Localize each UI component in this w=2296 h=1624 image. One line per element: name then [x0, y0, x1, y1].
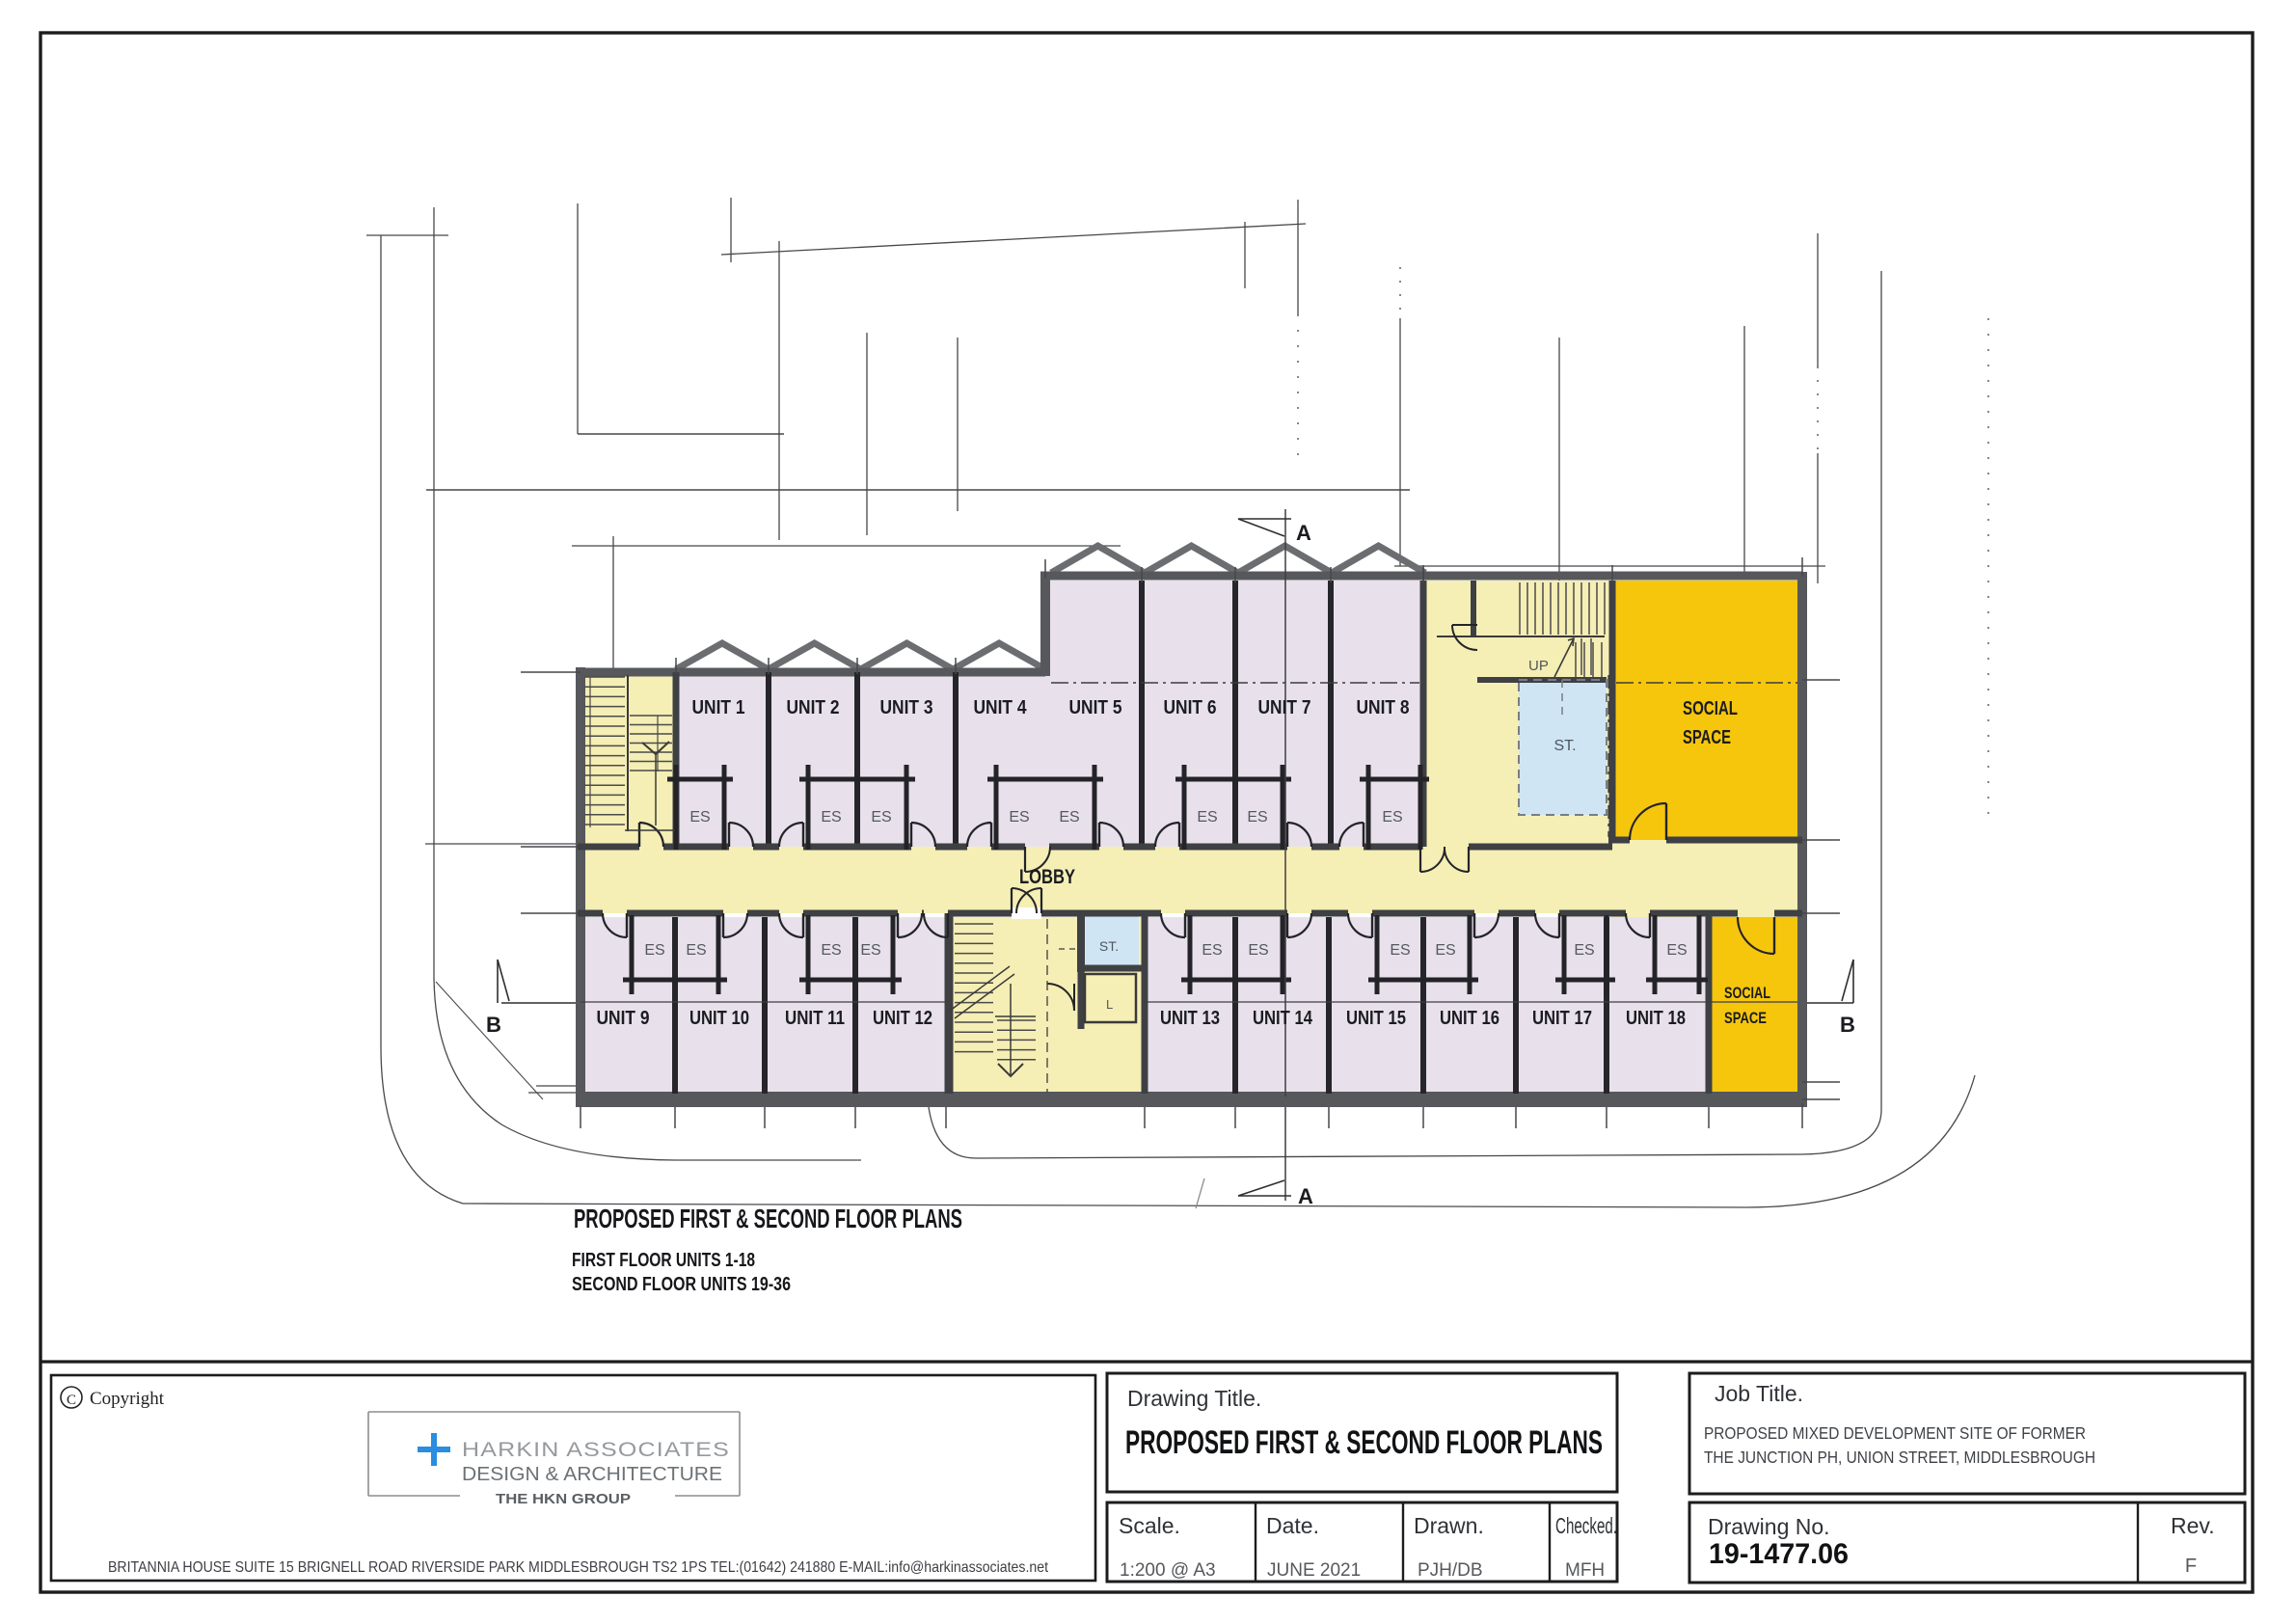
svg-text:DESIGN & ARCHITECTURE: DESIGN & ARCHITECTURE [462, 1464, 722, 1485]
svg-text:Date.: Date. [1266, 1513, 1319, 1538]
svg-text:ES: ES [1574, 942, 1594, 959]
svg-text:ES: ES [871, 809, 891, 826]
svg-text:ES: ES [1009, 809, 1029, 826]
svg-text:ES: ES [821, 942, 841, 959]
svg-text:ES: ES [1248, 942, 1268, 959]
svg-text:B: B [486, 1013, 501, 1037]
svg-text:HARKIN ASSOCIATES: HARKIN ASSOCIATES [462, 1439, 730, 1461]
svg-text:ES: ES [1247, 809, 1267, 826]
svg-text:ST.: ST. [1553, 738, 1576, 754]
svg-text:UNIT 11: UNIT 11 [785, 1008, 845, 1029]
svg-text:ES: ES [686, 942, 706, 959]
svg-text:PROPOSED FIRST & SECOND FLOOR: PROPOSED FIRST & SECOND FLOOR PLANS [574, 1204, 962, 1233]
svg-text:MFH: MFH [1565, 1560, 1605, 1581]
svg-text:ES: ES [689, 809, 710, 826]
svg-text:SOCIAL: SOCIAL [1724, 984, 1770, 1002]
svg-text:FIRST FLOOR UNITS 1-18: FIRST FLOOR UNITS 1-18 [572, 1250, 755, 1271]
svg-text:ST.: ST. [1099, 938, 1119, 954]
svg-text:ES: ES [1059, 809, 1079, 826]
svg-text:ES: ES [1666, 942, 1687, 959]
svg-text:B: B [1840, 1013, 1855, 1037]
svg-text:ES: ES [1202, 942, 1222, 959]
svg-text:L: L [1106, 997, 1113, 1012]
svg-text:ES: ES [1197, 809, 1217, 826]
svg-text:UNIT 16: UNIT 16 [1440, 1008, 1499, 1029]
svg-text:LOBBY: LOBBY [1019, 866, 1075, 888]
svg-text:UNIT 9: UNIT 9 [597, 1008, 650, 1029]
svg-text:UNIT 8: UNIT 8 [1357, 697, 1410, 718]
svg-text:ES: ES [1390, 942, 1410, 959]
svg-text:JUNE 2021: JUNE 2021 [1267, 1560, 1361, 1581]
svg-text:BRITANNIA HOUSE SUITE 15: BRITANNIA HOUSE SUITE 15 BRIGNELL ROAD R… [108, 1559, 1048, 1576]
svg-text:UNIT 7: UNIT 7 [1258, 697, 1311, 718]
svg-text:UNIT 17: UNIT 17 [1532, 1008, 1592, 1029]
svg-text:UNIT 14: UNIT 14 [1253, 1008, 1313, 1029]
svg-text:ES: ES [821, 809, 841, 826]
svg-text:SECOND FLOOR UNITS 19-36: SECOND FLOOR UNITS 19-36 [572, 1274, 791, 1295]
svg-text:Rev.: Rev. [2171, 1513, 2215, 1538]
svg-text:ES: ES [644, 942, 664, 959]
svg-text:UNIT 10: UNIT 10 [689, 1008, 749, 1029]
svg-text:THE JUNCTION PH, UNION STREET,: THE JUNCTION PH, UNION STREET, MIDDLESBR… [1704, 1448, 2095, 1467]
svg-text:Checked.: Checked. [1555, 1513, 1617, 1538]
svg-text:F: F [2185, 1556, 2197, 1577]
svg-text:UNIT 13: UNIT 13 [1160, 1008, 1220, 1029]
svg-text:UNIT 1: UNIT 1 [692, 697, 745, 718]
svg-text:A: A [1296, 521, 1311, 545]
svg-text:PROPOSED MIXED DEVELOPMENT SIT: PROPOSED MIXED DEVELOPMENT SITE OF FORME… [1704, 1423, 2086, 1443]
svg-text:Drawn.: Drawn. [1414, 1513, 1484, 1538]
svg-text:UNIT 6: UNIT 6 [1164, 697, 1217, 718]
svg-text:PROPOSED FIRST & SECOND FLOOR: PROPOSED FIRST & SECOND FLOOR PLANS [1125, 1424, 1603, 1461]
svg-text:UNIT 12: UNIT 12 [873, 1008, 932, 1029]
svg-text:Drawing No.: Drawing No. [1708, 1514, 1830, 1539]
svg-text:19-1477.06: 19-1477.06 [1709, 1538, 1849, 1570]
svg-text:Copyright: Copyright [90, 1389, 165, 1409]
svg-text:ES: ES [1382, 809, 1402, 826]
svg-text:Scale.: Scale. [1119, 1513, 1180, 1538]
svg-text:UNIT 3: UNIT 3 [880, 697, 933, 718]
svg-text:Job Title.: Job Title. [1715, 1381, 1803, 1406]
svg-text:THE HKN GROUP: THE HKN GROUP [496, 1491, 631, 1507]
svg-text:ES: ES [860, 942, 880, 959]
svg-text:SPACE: SPACE [1683, 727, 1731, 748]
svg-text:SPACE: SPACE [1724, 1009, 1767, 1027]
svg-text:C: C [67, 1393, 76, 1408]
svg-text:1:200 @ A3: 1:200 @ A3 [1120, 1560, 1216, 1581]
svg-text:UNIT 4: UNIT 4 [974, 697, 1028, 718]
svg-text:UP: UP [1528, 658, 1549, 674]
svg-text:ES: ES [1435, 942, 1455, 959]
svg-text:A: A [1298, 1184, 1313, 1208]
svg-text:UNIT 5: UNIT 5 [1069, 697, 1122, 718]
svg-text:SOCIAL: SOCIAL [1683, 698, 1738, 719]
svg-text:UNIT 18: UNIT 18 [1626, 1008, 1686, 1029]
svg-text:UNIT 2: UNIT 2 [787, 697, 840, 718]
svg-text:Drawing Title.: Drawing Title. [1127, 1386, 1261, 1411]
svg-text:UNIT 15: UNIT 15 [1346, 1008, 1406, 1029]
svg-text:PJH/DB: PJH/DB [1418, 1560, 1483, 1581]
